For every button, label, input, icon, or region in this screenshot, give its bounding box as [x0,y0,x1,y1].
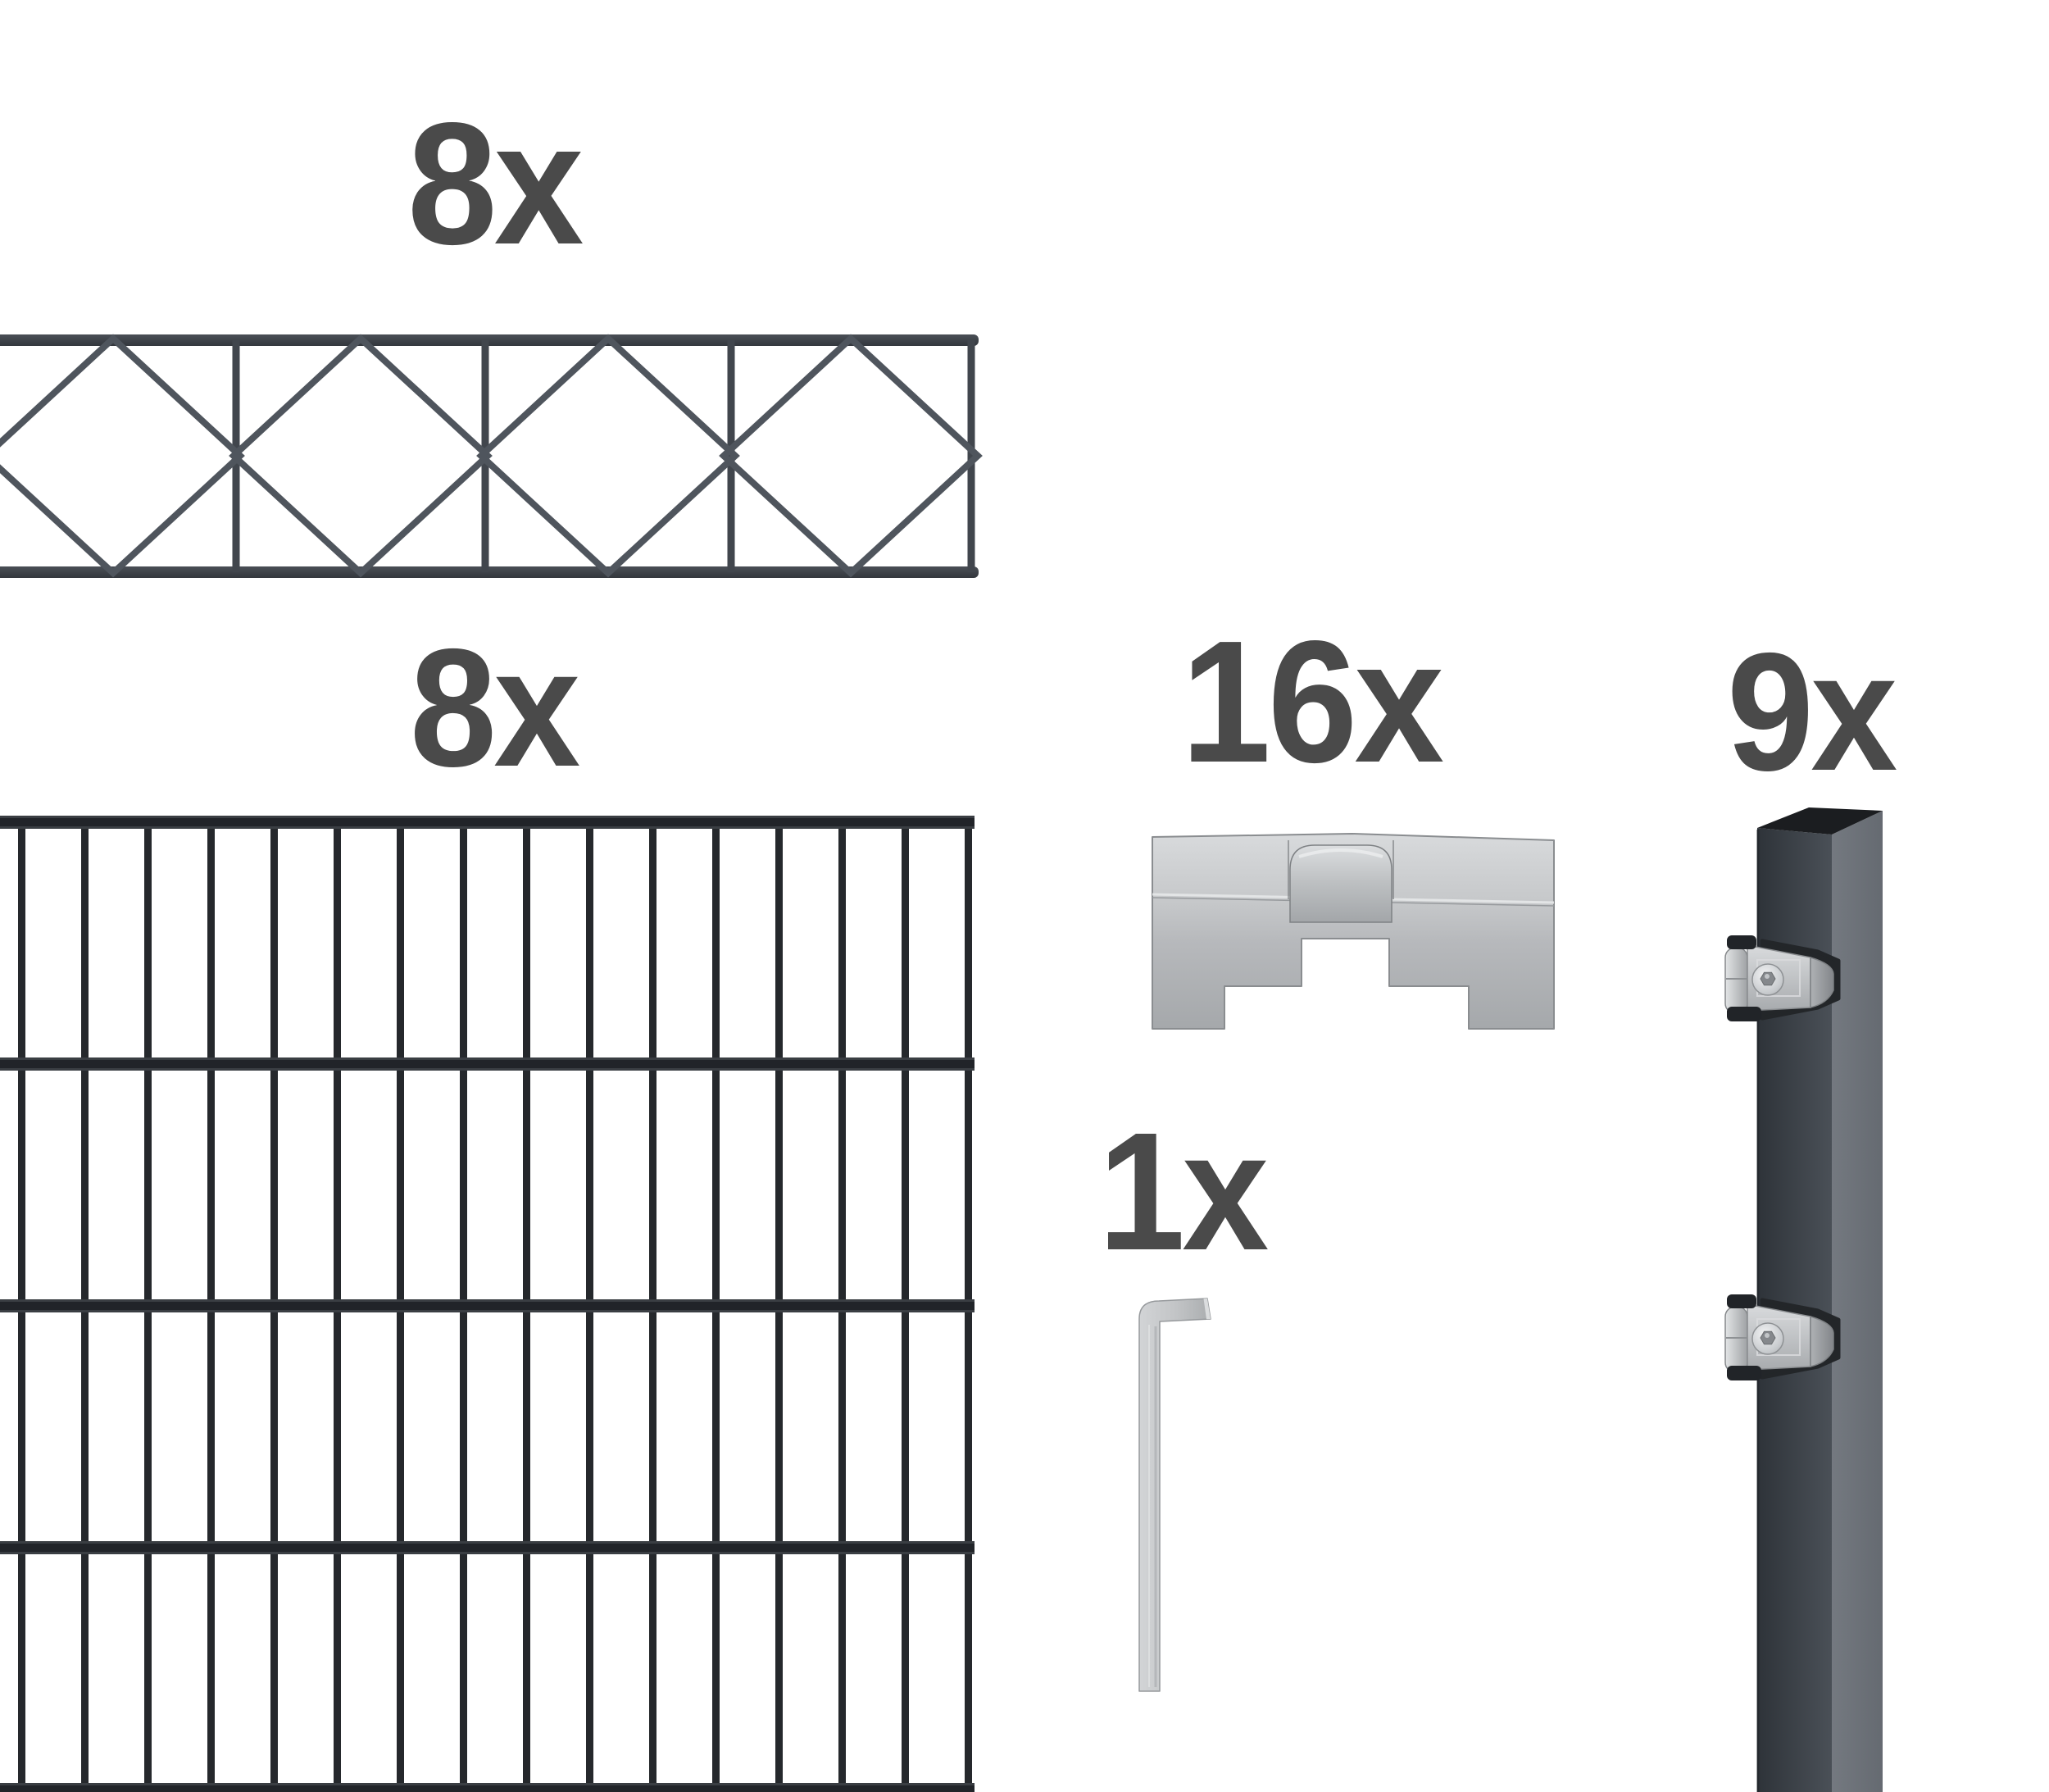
post-side-face [1832,811,1883,1792]
clamp-plate-dome [1290,845,1392,922]
clamp-bottom-nub [1727,1007,1761,1021]
qty-label-mesh-panel: 8x [410,624,577,792]
mesh-panel-graphic [0,816,975,1792]
clamp-top-nub [1727,935,1756,949]
qty-label-cover-clamp: 16x [1181,615,1441,789]
post-graphic [1713,803,1893,1792]
fence-kit-product-image: 8x 8x 16x 1x 9x [0,0,2049,1792]
clamp-left-roll [1725,948,1747,1013]
qty-label-decor-panel: 8x [407,97,580,271]
qty-label-post: 9x [1727,628,1894,796]
allen-key-graphic [1131,1287,1229,1705]
cover-clamp-graphic [1147,824,1565,1045]
decor-panel-graphic [0,328,984,590]
qty-label-hex-key: 1x [1098,1107,1265,1276]
allen-key-body [1139,1299,1211,1691]
clamp-screw-glint [1765,974,1770,979]
